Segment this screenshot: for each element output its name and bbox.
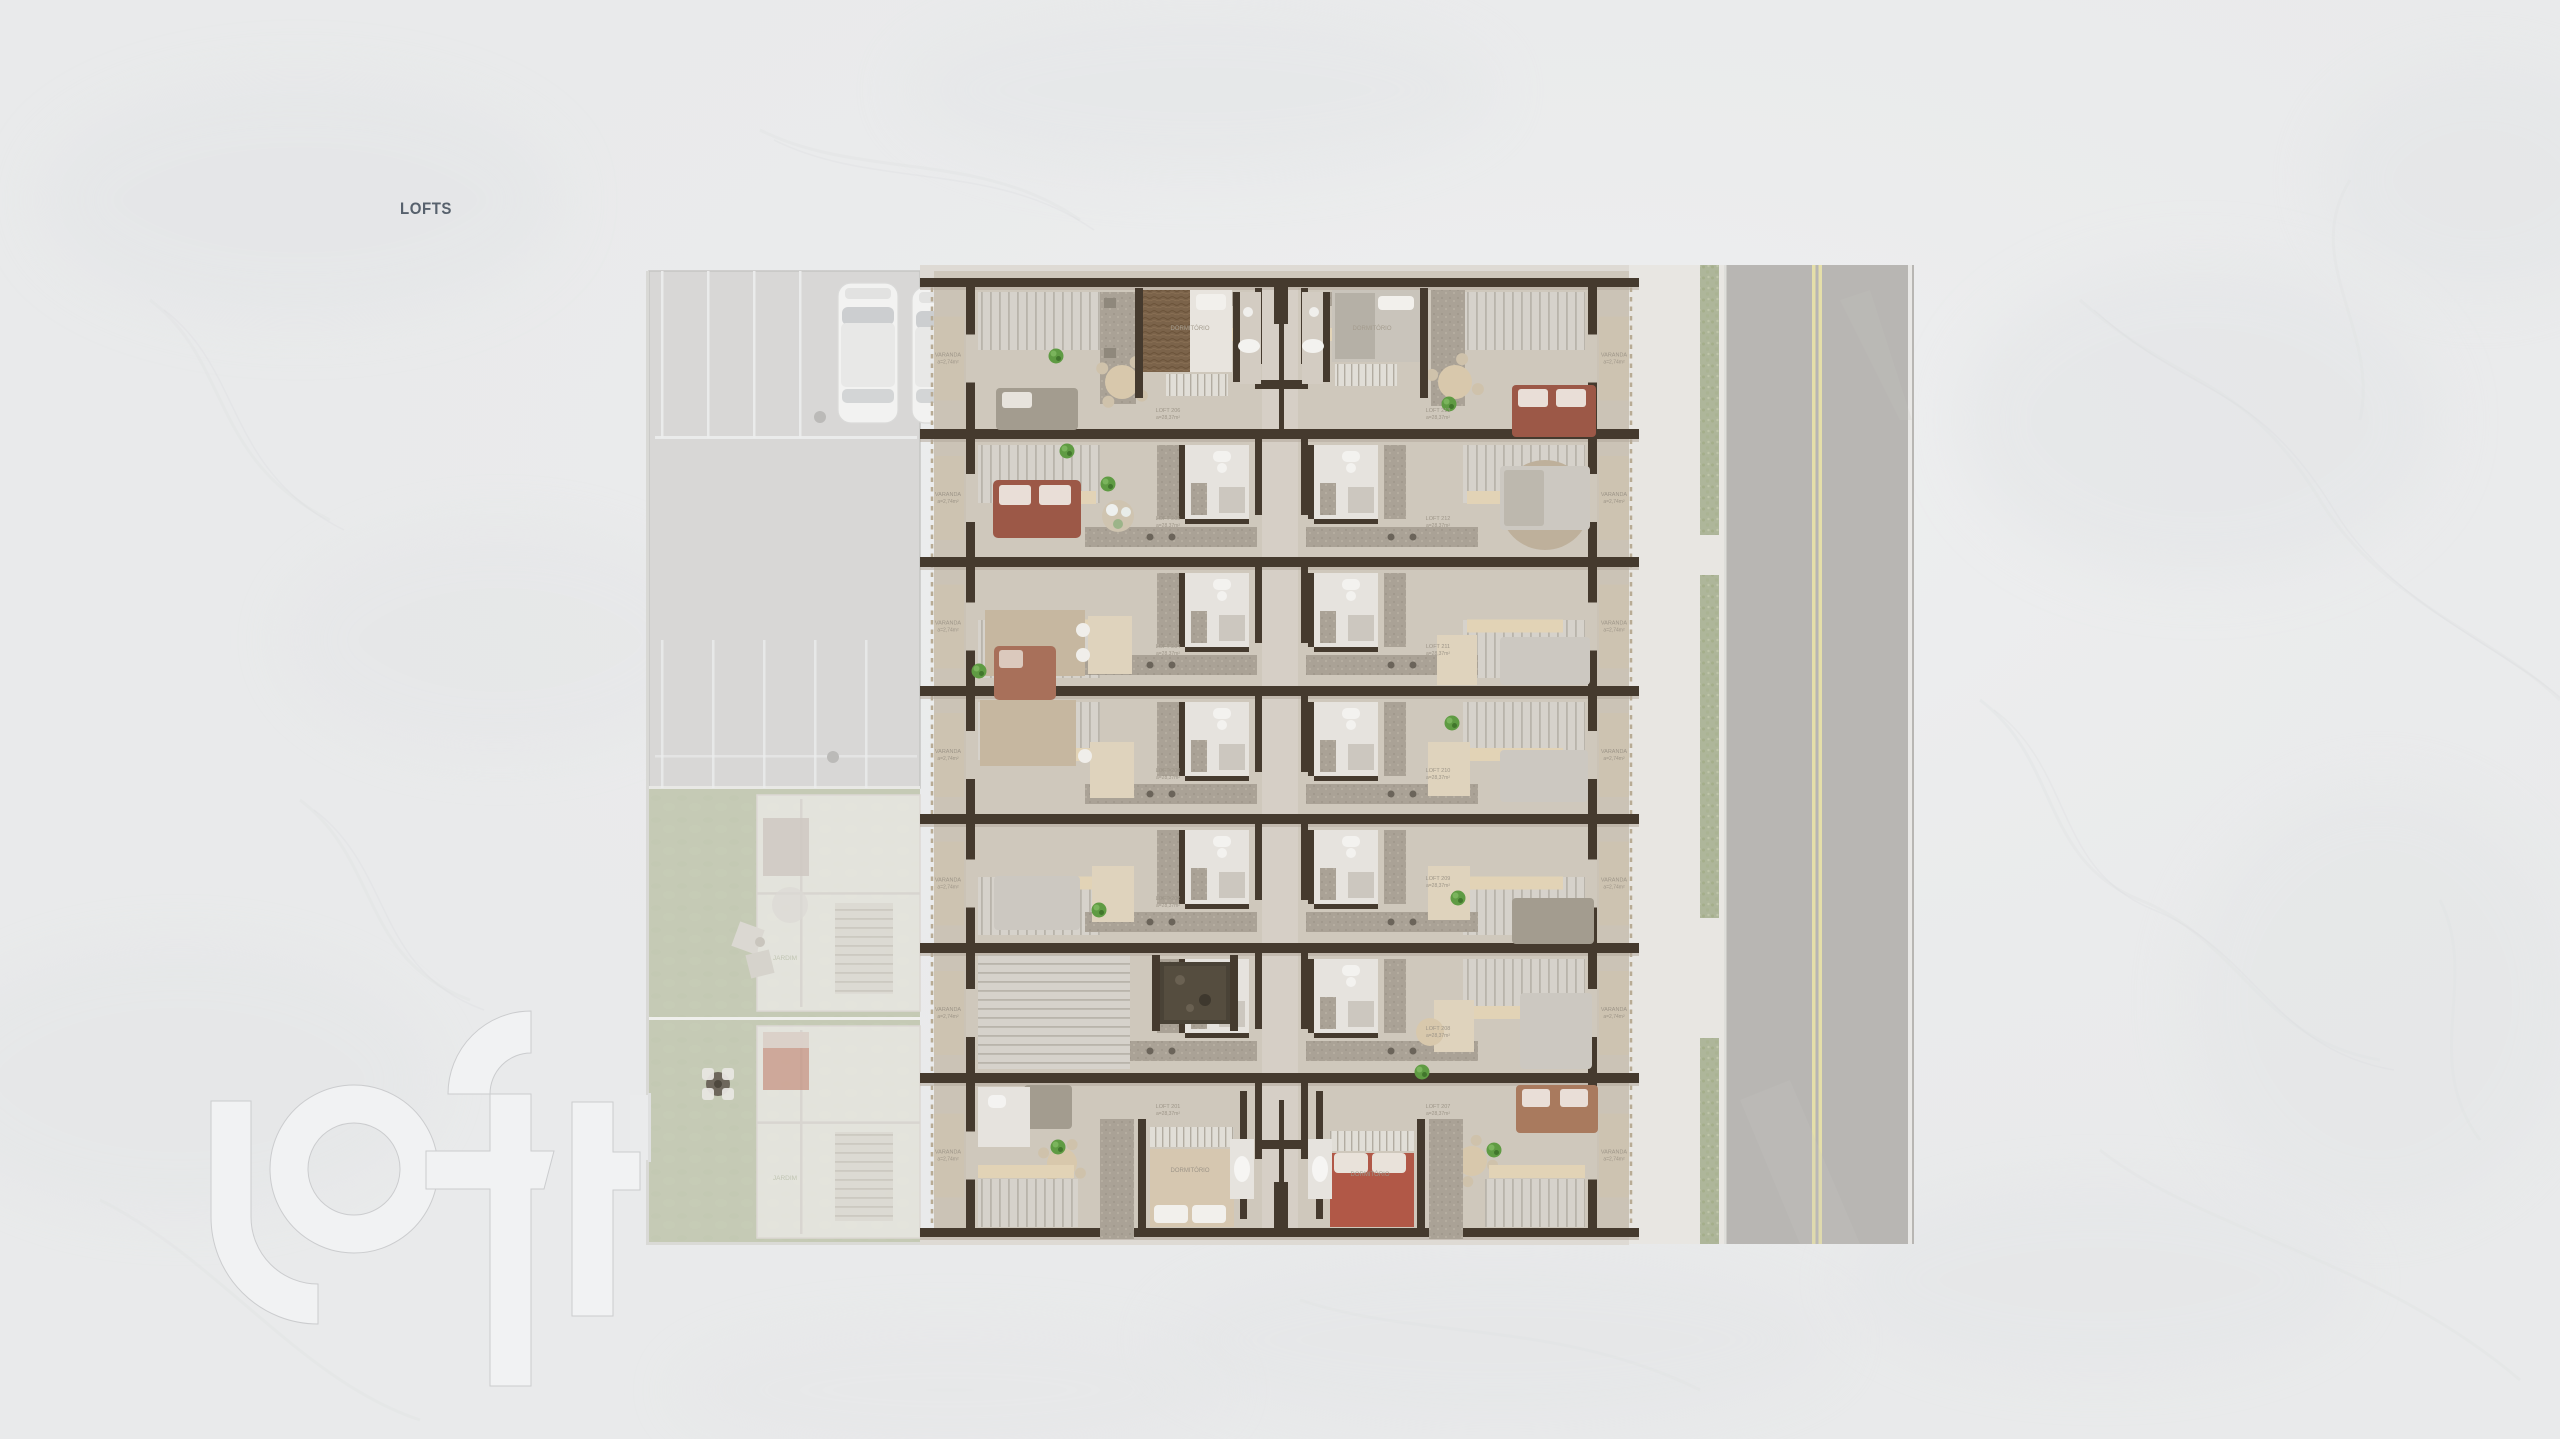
svg-text:LOFT 205: LOFT 205 [1156, 516, 1181, 522]
svg-text:a=28,37m²: a=28,37m² [1426, 1033, 1450, 1039]
svg-text:VARANDA: VARANDA [1601, 353, 1628, 359]
svg-text:a=2,74m²: a=2,74m² [937, 1014, 959, 1020]
svg-text:a=28,37m²: a=28,37m² [1156, 651, 1180, 657]
svg-text:LOFT 202: LOFT 202 [1156, 896, 1181, 902]
svg-text:VARANDA: VARANDA [1601, 1007, 1628, 1013]
svg-text:VARANDA: VARANDA [935, 353, 962, 359]
svg-text:a=2,74m²: a=2,74m² [937, 1157, 959, 1163]
svg-text:a=28,37m²: a=28,37m² [1426, 883, 1450, 889]
svg-text:a=28,37m²: a=28,37m² [1426, 651, 1450, 657]
svg-text:LOFT 213: LOFT 213 [1426, 408, 1451, 414]
svg-text:LOFT 210: LOFT 210 [1426, 768, 1451, 774]
svg-text:JARDIM: JARDIM [773, 955, 797, 962]
svg-text:VARANDA: VARANDA [1601, 621, 1628, 627]
svg-text:a=2,74m²: a=2,74m² [1603, 499, 1625, 505]
svg-text:a=2,74m²: a=2,74m² [1603, 628, 1625, 634]
svg-text:VARANDA: VARANDA [1601, 492, 1628, 498]
svg-text:DORMITÓRIO: DORMITÓRIO [1351, 1171, 1390, 1178]
svg-text:a=28,37m²: a=28,37m² [1156, 523, 1180, 529]
svg-text:a=2,74m²: a=2,74m² [937, 499, 959, 505]
svg-text:VARANDA: VARANDA [935, 1007, 962, 1013]
svg-text:a=2,74m²: a=2,74m² [937, 360, 959, 366]
svg-text:VARANDA: VARANDA [935, 1150, 962, 1156]
svg-text:LOFT 211: LOFT 211 [1426, 644, 1450, 650]
svg-text:VARANDA: VARANDA [935, 878, 962, 884]
svg-text:a=28,37m²: a=28,37m² [1426, 775, 1450, 781]
svg-text:LOFT 204: LOFT 204 [1156, 644, 1181, 650]
svg-text:a=2,74m²: a=2,74m² [1603, 1014, 1625, 1020]
svg-text:a=2,74m²: a=2,74m² [1603, 360, 1625, 366]
svg-text:LOFT 207: LOFT 207 [1426, 1104, 1451, 1110]
svg-text:a=28,37m²: a=28,37m² [1426, 1111, 1450, 1117]
svg-text:VARANDA: VARANDA [1601, 749, 1628, 755]
svg-text:LOFT 206: LOFT 206 [1156, 408, 1181, 414]
svg-text:a=28,37m²: a=28,37m² [1426, 415, 1450, 421]
svg-text:VARANDA: VARANDA [935, 749, 962, 755]
svg-text:DORMITÓRIO: DORMITÓRIO [1171, 325, 1210, 332]
svg-text:a=28,37m²: a=28,37m² [1156, 415, 1180, 421]
svg-text:a=2,74m²: a=2,74m² [1603, 756, 1625, 762]
svg-text:a=2,74m²: a=2,74m² [937, 885, 959, 891]
svg-text:LOFT 212: LOFT 212 [1426, 516, 1451, 522]
svg-text:VARANDA: VARANDA [1601, 878, 1628, 884]
svg-text:LOFT 208: LOFT 208 [1426, 1026, 1451, 1032]
svg-text:LOFT 203: LOFT 203 [1156, 768, 1181, 774]
svg-text:a=2,74m²: a=2,74m² [1603, 1157, 1625, 1163]
svg-text:a=28,37m²: a=28,37m² [1156, 903, 1180, 909]
svg-text:DORMITÓRIO: DORMITÓRIO [1171, 1167, 1210, 1174]
svg-text:JARDIM: JARDIM [773, 1175, 797, 1182]
svg-text:a=2,74m²: a=2,74m² [1603, 885, 1625, 891]
svg-text:a=28,37m²: a=28,37m² [1156, 1111, 1180, 1117]
svg-text:LOFTS: LOFTS [400, 200, 452, 218]
svg-text:a=2,74m²: a=2,74m² [937, 628, 959, 634]
svg-text:LOFT 201: LOFT 201 [1156, 1104, 1181, 1110]
svg-text:DORMITÓRIO: DORMITÓRIO [1353, 325, 1392, 332]
svg-text:VARANDA: VARANDA [935, 621, 962, 627]
svg-text:VARANDA: VARANDA [935, 492, 962, 498]
svg-text:a=2,74m²: a=2,74m² [937, 756, 959, 762]
svg-text:LOFT 209: LOFT 209 [1426, 876, 1451, 882]
svg-text:a=28,37m²: a=28,37m² [1426, 523, 1450, 529]
svg-text:a=28,37m²: a=28,37m² [1156, 775, 1180, 781]
svg-text:VARANDA: VARANDA [1601, 1150, 1628, 1156]
